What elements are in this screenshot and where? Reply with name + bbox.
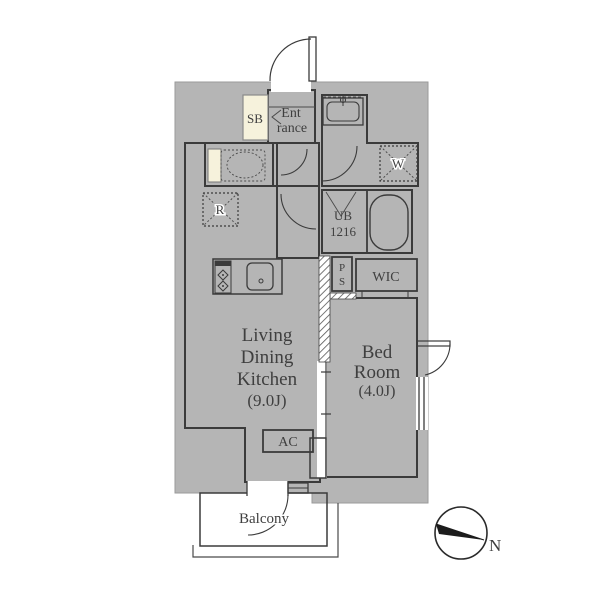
bedroom-window <box>416 377 428 430</box>
label-ub-line2: 1216 <box>330 224 357 239</box>
entrance-door-opening <box>271 81 311 92</box>
label-wic: WIC <box>372 270 399 285</box>
label-ps-line1: P <box>339 262 345 274</box>
label-washer: W <box>392 156 405 171</box>
hatch-partition <box>319 256 330 362</box>
label-bedroom-line2: Room <box>354 362 401 383</box>
label-entrance-line2: rance <box>277 121 307 136</box>
label-ldk-line4: (9.0J) <box>247 391 286 410</box>
label-ps-line2: S <box>339 276 345 288</box>
compass-icon: N <box>435 507 501 559</box>
label-ldk-line3: Kitchen <box>237 369 298 390</box>
balcony-door-opening <box>247 481 288 496</box>
label-entrance-line1: Ent <box>281 106 301 121</box>
label-bedroom-line1: Bed <box>362 342 393 363</box>
hatch-stub <box>330 293 356 299</box>
floor-plan-canvas: SB Ent rance W R UB 1216 P S WIC Living … <box>0 0 600 600</box>
label-sb: SB <box>247 111 263 126</box>
label-ac: AC <box>278 435 297 450</box>
label-ub-line1: UB <box>334 208 352 223</box>
entrance-door-arc <box>270 39 311 81</box>
label-bedroom-line3: (4.0J) <box>359 383 396 400</box>
label-fridge: R <box>216 202 225 217</box>
label-ldk-line1: Living <box>242 325 293 346</box>
label-balcony: Balcony <box>239 511 289 527</box>
entrance-door-leaf <box>309 37 316 81</box>
compass-north-label: N <box>489 536 501 555</box>
label-ldk-line2: Dining <box>241 347 294 368</box>
floor-plan: SB Ent rance W R UB 1216 P S WIC Living … <box>0 0 600 600</box>
